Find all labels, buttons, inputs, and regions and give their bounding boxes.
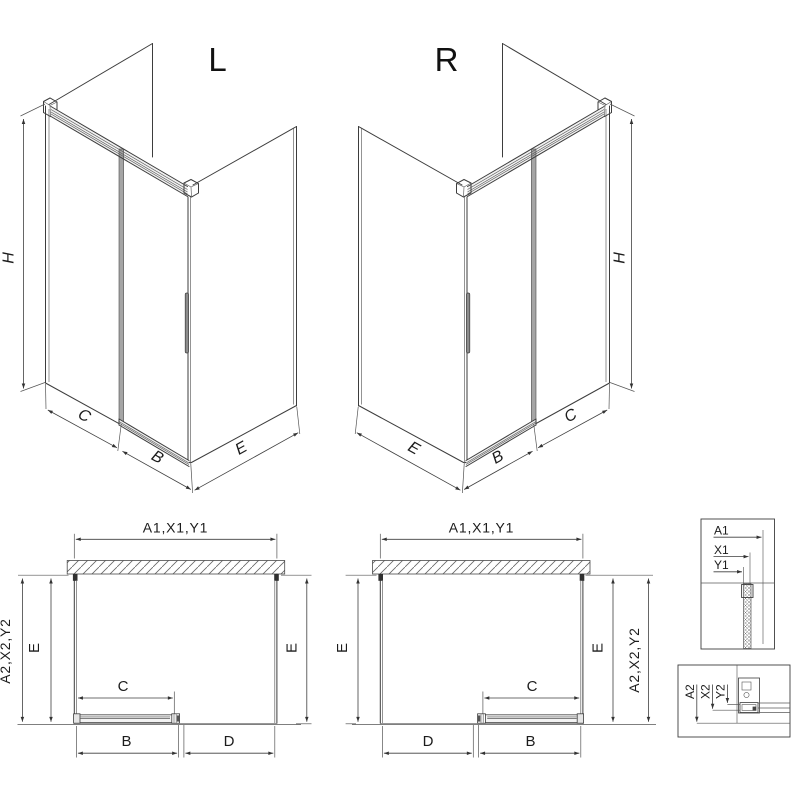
dim-label-b-right-view: B bbox=[489, 447, 507, 467]
detail-dim-y2-label: Y2 bbox=[713, 684, 727, 699]
shower-enclosure-diagram: L H C B E R H C B E A1,X1,Y1 A2 bbox=[0, 0, 800, 800]
detail-dim-y1-label: Y1 bbox=[714, 558, 729, 572]
dim-label-c-right-plan: C bbox=[527, 678, 538, 695]
dim-label-d-left-plan: D bbox=[224, 733, 235, 750]
dim-label-e-right-view: E bbox=[405, 439, 423, 459]
dim-label-e-left-side-left-plan: E bbox=[26, 643, 43, 653]
detail-dim-a2-label: A2 bbox=[683, 684, 697, 699]
wall-profile-left bbox=[378, 574, 383, 581]
detail-dim-x1-label: X1 bbox=[714, 543, 729, 557]
dim-label-b-left-plan: B bbox=[121, 733, 131, 750]
dim-label-b-right-plan: B bbox=[525, 733, 535, 750]
variant-l-label: L bbox=[208, 41, 226, 78]
variant-r-label: R bbox=[435, 41, 459, 78]
view-3d-right-variant: R H C B E bbox=[355, 41, 634, 493]
diagram-canvas: L H C B E R H C B E A1,X1,Y1 A2 bbox=[0, 0, 800, 800]
view-3d-left-variant: L H C B E bbox=[1, 41, 300, 493]
dim-label-e-left-side-right-plan: E bbox=[334, 643, 351, 653]
dim-label-h-right-view: H bbox=[612, 252, 629, 264]
wall-profile-left bbox=[73, 574, 78, 581]
dim-label-b-left-view: B bbox=[148, 448, 166, 468]
door-rail-plan bbox=[478, 714, 584, 723]
dim-label-c-left-plan: C bbox=[118, 678, 129, 695]
dim-label-e-right-side-left-plan: E bbox=[284, 643, 301, 653]
dim-label-c-right-view: C bbox=[562, 406, 581, 427]
wall-profile-right bbox=[274, 574, 279, 581]
detail-dim-x2-label: X2 bbox=[699, 684, 713, 699]
door-rail-plan bbox=[74, 714, 180, 723]
dim-label-c-left-view: C bbox=[75, 406, 94, 427]
dim-label-a2x2y2-right-plan: A2,X2,Y2 bbox=[626, 627, 642, 693]
dim-label-a2x2y2-left-plan: A2,X2,Y2 bbox=[0, 618, 13, 684]
dim-label-e-left-view: E bbox=[233, 438, 251, 458]
plan-view-left-variant: A1,X1,Y1 A2,X2,Y2 E E C B D bbox=[0, 520, 312, 758]
wall-hatch-strip bbox=[67, 561, 285, 575]
glass-panel-section bbox=[744, 584, 751, 649]
dim-label-h-left-view: H bbox=[1, 252, 18, 264]
wall-hatch-strip bbox=[373, 561, 591, 575]
detail-top-profile-box: A1 X1 Y1 bbox=[701, 519, 775, 649]
dim-label-d-right-plan: D bbox=[423, 733, 434, 750]
plan-view-right-variant: A1,X1,Y1 A2,X2,Y2 E E C D B bbox=[334, 520, 656, 758]
dim-label-a1x1y1-left-plan: A1,X1,Y1 bbox=[143, 520, 209, 536]
wall-profile-right bbox=[580, 574, 585, 581]
dim-label-e-right-side-right-plan: E bbox=[590, 643, 607, 653]
detail-bottom-profile-box: A2 X2 Y2 bbox=[678, 665, 790, 737]
detail-dim-a1-label: A1 bbox=[714, 524, 729, 538]
dim-label-a1x1y1-right-plan: A1,X1,Y1 bbox=[449, 520, 515, 536]
